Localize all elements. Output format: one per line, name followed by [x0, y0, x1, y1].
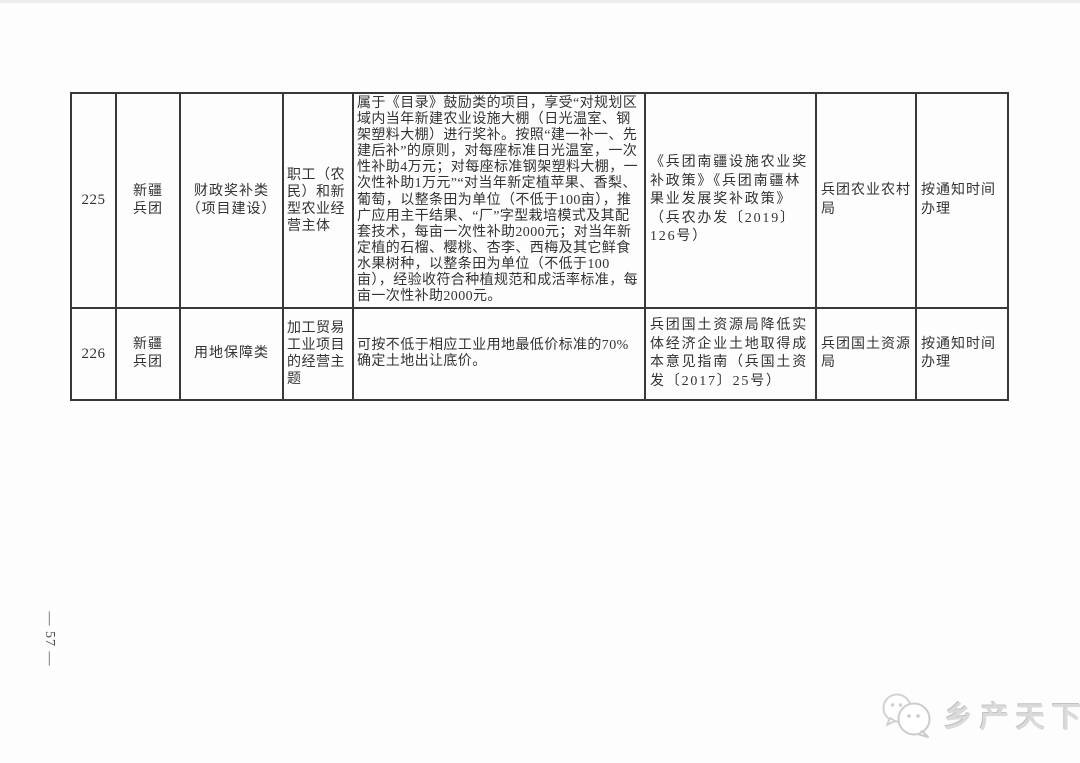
cell-category: 财政奖补类 （项目建设）	[180, 93, 283, 308]
cell-region: 新疆 兵团	[116, 308, 180, 400]
scan-edge-artifact	[0, 0, 1080, 3]
cell-target-group: 加工贸易工业项目的经营主题	[283, 308, 353, 400]
cell-department: 兵团农业农村局	[816, 93, 916, 308]
cell-policy-measure: 可按不低于相应工业用地最低价标准的70%确定土地出让底价。	[353, 308, 645, 400]
chat-bubbles-logo-icon	[876, 686, 938, 744]
cell-processing-time: 按通知时间办理	[916, 93, 1008, 308]
table-row: 226 新疆 兵团 用地保障类 加工贸易工业项目的经营主题 可按不低于相应工业用…	[71, 308, 1008, 400]
watermark: 乡产天下	[876, 686, 1080, 744]
table-row: 225 新疆 兵团 财政奖补类 （项目建设） 职工（农民）和新型农业经营主体 属…	[71, 93, 1008, 308]
cell-seq-number: 226	[71, 308, 116, 400]
cell-department: 兵团国土资源局	[816, 308, 916, 400]
cell-seq-number: 225	[71, 93, 116, 308]
cell-policy-basis: 兵团国土资源局降低实体经济企业土地取得成本意见指南（兵国土资发〔2017〕25号…	[645, 308, 816, 400]
policy-table: 225 新疆 兵团 财政奖补类 （项目建设） 职工（农民）和新型农业经营主体 属…	[70, 92, 1009, 401]
cell-target-group: 职工（农民）和新型农业经营主体	[283, 93, 353, 308]
cell-policy-basis: 《兵团南疆设施农业奖补政策》《兵团南疆林果业发展奖补政策》（兵农办发〔2019〕…	[645, 93, 816, 308]
watermark-brand-text: 乡产天下	[944, 694, 1080, 736]
page-number: — 57 —	[41, 579, 57, 699]
cell-policy-measure: 属于《目录》鼓励类的项目，享受“对规划区域内当年新建农业设施大棚（日光温室、钢架…	[353, 93, 645, 308]
cell-category: 用地保障类	[180, 308, 283, 400]
cell-processing-time: 按通知时间办理	[916, 308, 1008, 400]
cell-region: 新疆 兵团	[116, 93, 180, 308]
